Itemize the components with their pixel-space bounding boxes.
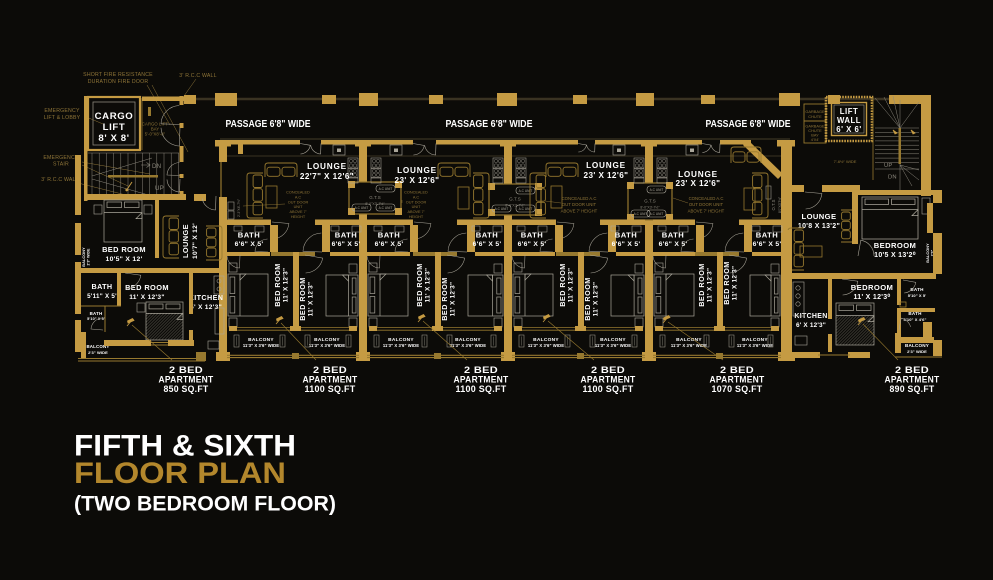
svg-text:HEIGHT: HEIGHT — [409, 215, 424, 219]
svg-text:G.T.S: G.T.S — [644, 199, 655, 204]
svg-text:A.C UNIT: A.C UNIT — [379, 187, 393, 191]
svg-text:BED ROOM: BED ROOM — [273, 263, 282, 307]
svg-text:A.C: A.C — [295, 195, 302, 199]
svg-text:ABOVE 7': ABOVE 7' — [408, 210, 425, 214]
svg-text:UP: UP — [155, 185, 164, 192]
svg-text:O.T.S: O.T.S — [771, 199, 776, 210]
svg-text:11'3" X 3'6" WIDE: 11'3" X 3'6" WIDE — [309, 343, 345, 348]
svg-text:BED ROOM: BED ROOM — [298, 277, 307, 321]
svg-text:A.C: A.C — [413, 195, 420, 199]
svg-text:11' X 12'3": 11' X 12'3" — [732, 266, 739, 301]
svg-text:BEDROOM: BEDROOM — [874, 241, 916, 250]
svg-text:DURATION FIRE DOOR: DURATION FIRE DOOR — [88, 79, 149, 85]
svg-text:BED ROOM: BED ROOM — [558, 263, 567, 307]
svg-text:11' X 12'3": 11' X 12'3" — [593, 282, 600, 317]
svg-text:HEIGHT: HEIGHT — [291, 215, 306, 219]
svg-text:A.C UNIT: A.C UNIT — [634, 212, 648, 216]
svg-text:PASSAGE 6'8" WIDE: PASSAGE 6'8" WIDE — [226, 118, 311, 130]
svg-text:LIFT: LIFT — [103, 122, 126, 133]
svg-text:6'6" X 5': 6'6" X 5' — [473, 241, 502, 248]
svg-text:6'6" X 5': 6'6" X 5' — [375, 241, 404, 248]
svg-text:CONCEALED A.C: CONCEALED A.C — [689, 196, 724, 201]
svg-text:11'3" X 3'6" WIDE: 11'3" X 3'6" WIDE — [595, 343, 631, 348]
svg-text:11'3" X 3'6" WIDE: 11'3" X 3'6" WIDE — [528, 343, 564, 348]
svg-text:11' X 12'3": 11' X 12'3" — [425, 268, 432, 303]
svg-text:5'10" X 4'6": 5'10" X 4'6" — [904, 317, 927, 322]
svg-text:6'6" X 5': 6'6" X 5' — [612, 241, 641, 248]
svg-text:UP: UP — [884, 163, 892, 169]
svg-text:6'6" X 5': 6'6" X 5' — [753, 241, 782, 248]
svg-text:11' X 12'3": 11' X 12'3" — [283, 268, 290, 303]
svg-text:ABOVE 7' HEIGHT: ABOVE 7' HEIGHT — [688, 208, 725, 213]
svg-text:8'-0"X3'-7½": 8'-0"X3'-7½" — [640, 206, 660, 210]
svg-text:10'5" X 12': 10'5" X 12' — [106, 256, 143, 263]
svg-text:EMERGENCY: EMERGENCY — [43, 155, 79, 161]
svg-text:ABOVE 7' HEIGHT: ABOVE 7' HEIGHT — [561, 208, 598, 213]
svg-text:3' R.C.C WALL: 3' R.C.C WALL — [41, 177, 78, 183]
svg-text:8'0"X3'7½": 8'0"X3'7½" — [778, 196, 782, 213]
svg-text:11'3" X 3'6" WIDE: 11'3" X 3'6" WIDE — [243, 343, 279, 348]
svg-text:WALL: WALL — [837, 116, 861, 125]
svg-text:11' X 12'3": 11' X 12'3" — [450, 282, 457, 317]
svg-text:CONCEALED: CONCEALED — [404, 191, 428, 195]
svg-text:11'3" X 3'6" WIDE: 11'3" X 3'6" WIDE — [383, 343, 419, 348]
svg-text:BED ROOM: BED ROOM — [583, 277, 592, 321]
svg-text:6' X 12'3": 6' X 12'3" — [796, 322, 826, 329]
svg-text:BATH: BATH — [910, 287, 924, 292]
svg-text:BALCONY: BALCONY — [82, 247, 86, 267]
svg-text:890 SQ.FT: 890 SQ.FT — [890, 384, 935, 395]
svg-text:A.C UNIT: A.C UNIT — [355, 206, 369, 210]
svg-text:CHUTE: CHUTE — [808, 114, 822, 119]
svg-text:UNIT: UNIT — [412, 205, 422, 209]
svg-text:LOUNGE: LOUNGE — [181, 224, 190, 258]
svg-text:23' X 12'6": 23' X 12'6" — [395, 176, 440, 185]
svg-text:LIFT: LIFT — [840, 107, 858, 116]
svg-text:4'X4': 4'X4' — [811, 137, 820, 142]
svg-text:2'3" WIDE: 2'3" WIDE — [88, 350, 108, 355]
svg-text:22'7" X 12'6": 22'7" X 12'6" — [300, 172, 354, 181]
svg-text:PASSAGE 6'8" WIDE: PASSAGE 6'8" WIDE — [446, 118, 533, 130]
svg-text:6'6" X 5': 6'6" X 5' — [332, 241, 361, 248]
svg-text:11' X 12'3": 11' X 12'3" — [568, 268, 575, 303]
svg-text:11' X 12'3": 11' X 12'3" — [129, 294, 165, 301]
svg-text:LOUNGE: LOUNGE — [397, 166, 437, 175]
svg-text:2'3" WIDE: 2'3" WIDE — [87, 248, 91, 266]
svg-text:850 SQ.FT: 850 SQ.FT — [164, 384, 209, 395]
svg-text:1100 SQ.FT: 1100 SQ.FT — [583, 384, 634, 395]
svg-text:OUT DOOR: OUT DOOR — [406, 200, 427, 204]
svg-text:LOUNGE: LOUNGE — [586, 161, 626, 170]
svg-text:LOUNGE: LOUNGE — [307, 162, 347, 171]
svg-text:11'3" X 3'6" WIDE: 11'3" X 3'6" WIDE — [450, 343, 486, 348]
svg-text:BATH: BATH — [91, 282, 112, 291]
svg-text:1100 SQ.FT: 1100 SQ.FT — [456, 384, 507, 395]
svg-text:5' X 12'3": 5' X 12'3" — [190, 304, 222, 311]
svg-text:1100 SQ.FT: 1100 SQ.FT — [305, 384, 356, 395]
svg-text:G.T.S: G.T.S — [369, 195, 380, 200]
svg-text:G.T.S: G.T.S — [509, 197, 520, 202]
svg-text:8' X 8': 8' X 8' — [98, 133, 129, 144]
svg-text:CARGO: CARGO — [95, 111, 134, 122]
svg-text:OUT DOOR: OUT DOOR — [288, 200, 309, 204]
svg-text:5'11" X 5': 5'11" X 5' — [87, 293, 117, 300]
svg-text:1070 SQ.FT: 1070 SQ.FT — [712, 384, 763, 395]
svg-text:DN: DN — [152, 163, 161, 170]
svg-text:A.C UNIT: A.C UNIT — [650, 212, 664, 216]
svg-text:2'3" WIDE: 2'3" WIDE — [907, 349, 927, 354]
svg-text:FLOOR PLAN: FLOOR PLAN — [74, 457, 286, 490]
svg-text:A.C UNIT: A.C UNIT — [650, 188, 664, 192]
svg-text:PASSAGE 6'8" WIDE: PASSAGE 6'8" WIDE — [706, 118, 791, 130]
svg-text:OUT DOOR UNIT: OUT DOOR UNIT — [689, 202, 724, 207]
svg-text:(TWO BEDROOM FLOOR): (TWO BEDROOM FLOOR) — [74, 493, 336, 516]
svg-text:BED ROOM: BED ROOM — [722, 261, 731, 305]
svg-text:11' X 12'3": 11' X 12'3" — [308, 282, 315, 317]
svg-text:KITCHEN: KITCHEN — [794, 313, 827, 320]
svg-text:BATH: BATH — [90, 311, 103, 316]
svg-text:ABOVE 7': ABOVE 7' — [290, 210, 307, 214]
svg-text:BALCONY: BALCONY — [926, 243, 930, 263]
svg-text:UNIT: UNIT — [294, 205, 304, 209]
svg-text:3' R.C.C WALL: 3' R.C.C WALL — [179, 73, 216, 79]
svg-text:2'-3"X6'-7½": 2'-3"X6'-7½" — [237, 198, 241, 217]
svg-text:23' X 12'6": 23' X 12'6" — [676, 179, 721, 188]
svg-text:OUT DOOR UNIT: OUT DOOR UNIT — [562, 202, 597, 207]
svg-text:LOUNGE: LOUNGE — [802, 212, 837, 221]
svg-text:6' X 6': 6' X 6' — [836, 125, 861, 134]
svg-text:BED ROOM: BED ROOM — [102, 245, 146, 254]
svg-text:LIFT & LOBBY: LIFT & LOBBY — [44, 115, 81, 121]
svg-text:BALCONY: BALCONY — [905, 343, 929, 348]
svg-text:A.C UNIT: A.C UNIT — [495, 207, 509, 211]
svg-text:10'5 X 13'2⁰: 10'5 X 13'2⁰ — [874, 251, 916, 259]
svg-text:6'6" X 5': 6'6" X 5' — [235, 241, 264, 248]
svg-text:7'-6½" WIDE: 7'-6½" WIDE — [834, 159, 857, 164]
svg-text:10'8 X 13'2": 10'8 X 13'2" — [798, 223, 840, 230]
svg-text:5'10" X 5': 5'10" X 5' — [908, 293, 927, 298]
svg-text:CONCEALED: CONCEALED — [286, 191, 310, 195]
svg-text:BED ROOM: BED ROOM — [415, 263, 424, 307]
svg-text:23' X 12'6": 23' X 12'6" — [584, 171, 629, 180]
svg-text:EMERGENCY: EMERGENCY — [44, 108, 80, 114]
svg-text:A.C UNIT: A.C UNIT — [379, 206, 393, 210]
svg-text:STAIR: STAIR — [53, 162, 69, 168]
svg-text:BED ROOM: BED ROOM — [697, 263, 706, 307]
svg-text:SHORT FIRE RESISTANCE: SHORT FIRE RESISTANCE — [83, 72, 153, 78]
svg-text:CONCEALED A.C: CONCEALED A.C — [562, 196, 597, 201]
svg-text:DN: DN — [888, 175, 897, 181]
svg-text:11' X 12'3": 11' X 12'3" — [707, 268, 714, 303]
svg-text:KITCHEN: KITCHEN — [189, 293, 224, 302]
svg-text:BATH: BATH — [908, 311, 922, 316]
svg-text:BED ROOM: BED ROOM — [440, 277, 449, 321]
svg-text:LOUNGE: LOUNGE — [678, 170, 718, 179]
svg-text:10'7" X 12': 10'7" X 12' — [192, 223, 199, 259]
svg-text:11' X 12'3⁰: 11' X 12'3⁰ — [853, 293, 890, 301]
